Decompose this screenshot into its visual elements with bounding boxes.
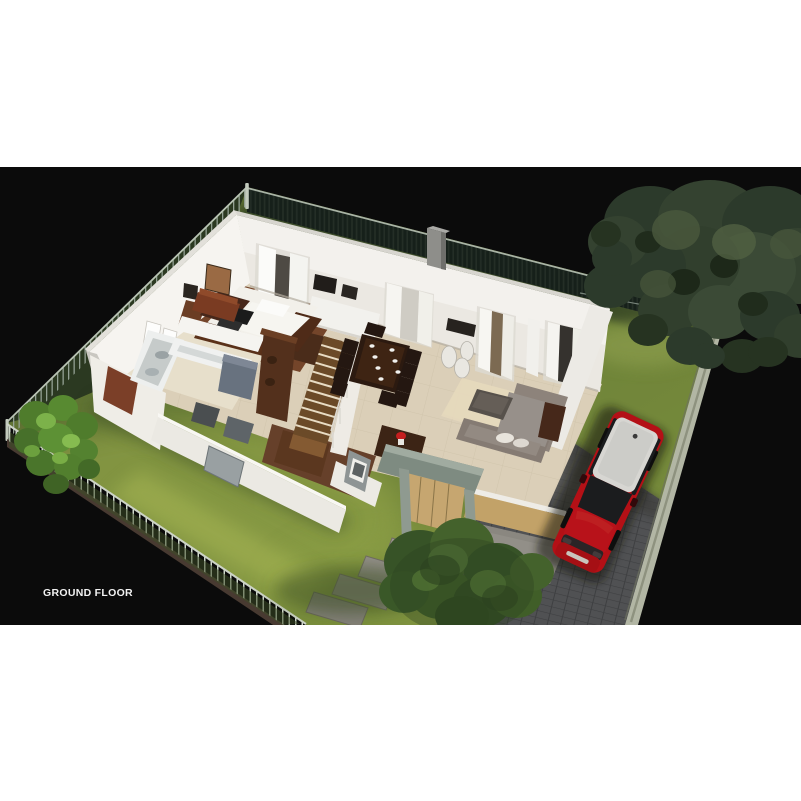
svg-text:GROUND FLOOR: GROUND FLOOR [43,587,133,599]
